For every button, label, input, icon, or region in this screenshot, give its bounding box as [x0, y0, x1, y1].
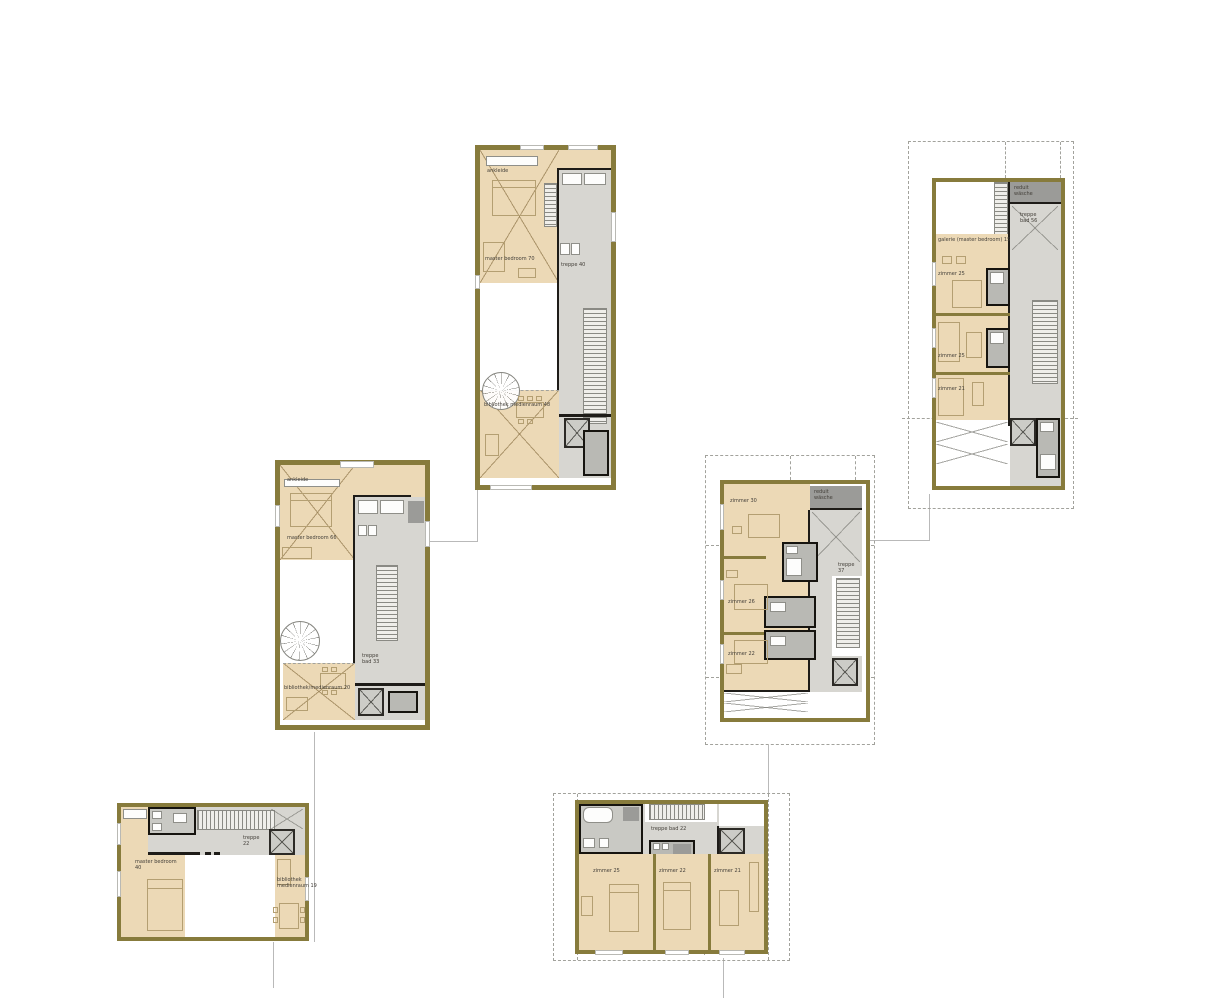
window	[720, 504, 724, 530]
fixture	[152, 811, 162, 819]
roof-cross	[724, 693, 808, 702]
room-label: master bedroom 66	[287, 535, 337, 541]
dashed-axis	[1060, 142, 1061, 178]
connector-line	[723, 958, 724, 998]
shelf	[485, 434, 499, 456]
roof-cross	[812, 512, 860, 562]
floorplan-top-center: ankleide master bedroom 70 treppe 40 bib…	[475, 145, 616, 490]
bed-headboard	[147, 879, 183, 889]
stairs	[649, 804, 705, 820]
dashed-axis	[855, 456, 856, 480]
room-divider-wall	[724, 556, 766, 559]
chair	[527, 419, 533, 424]
bathroom	[583, 430, 609, 476]
window	[720, 580, 724, 600]
table	[518, 268, 536, 278]
dashed-axis	[1005, 142, 1006, 178]
roof-cross	[271, 809, 303, 829]
room-label: zimmer 25	[938, 271, 965, 277]
fixture	[653, 843, 660, 850]
window	[340, 461, 374, 468]
window	[475, 275, 480, 289]
chair	[300, 907, 305, 913]
room-divider-wall	[653, 854, 656, 950]
bed	[952, 280, 982, 308]
floorplan-bottom-center: treppe bad 22 zimmer 25 zimmer 22 zimmer…	[575, 800, 768, 954]
stairs	[1032, 300, 1058, 384]
elevator	[269, 829, 295, 855]
window	[665, 950, 689, 955]
chair	[322, 667, 328, 672]
fixture	[990, 272, 1004, 284]
fixture	[990, 332, 1004, 344]
room-label: galerie (master bedroom) 15	[938, 237, 1010, 243]
room-divider-wall	[936, 372, 1010, 375]
bed-headboard	[492, 180, 536, 188]
window	[932, 328, 936, 348]
chair	[726, 570, 738, 578]
wardrobe	[486, 156, 538, 166]
dining-table	[279, 903, 299, 929]
window	[425, 521, 430, 547]
window	[932, 262, 936, 286]
interior-wall	[355, 683, 425, 686]
void-area	[719, 804, 764, 826]
room-label: zimmer 21	[714, 868, 741, 874]
elevator	[1010, 418, 1036, 446]
appliance	[623, 807, 639, 821]
closet	[358, 500, 378, 514]
chair	[518, 419, 524, 424]
closet	[584, 173, 606, 185]
table	[719, 890, 739, 926]
window	[520, 145, 544, 150]
spiral-stair	[280, 621, 320, 661]
room-label: master bedroom 40	[135, 859, 177, 871]
room-label: zimmer 25	[938, 353, 965, 359]
fixture	[173, 813, 187, 823]
bed	[748, 514, 780, 538]
floorplan-mid-left: ankleide master bedroom 66 treppe bad 33…	[275, 460, 430, 730]
window	[595, 950, 623, 955]
kitchenette	[560, 243, 570, 255]
room-label: ankleide	[487, 168, 508, 174]
shower	[1040, 454, 1056, 470]
room-label: zimmer 30	[730, 498, 757, 504]
stairs	[544, 183, 557, 227]
toilet	[583, 838, 595, 848]
elevator	[832, 658, 858, 686]
connector-line	[273, 942, 274, 988]
kitchenette	[358, 525, 367, 536]
dashed-axis	[790, 456, 791, 480]
room-label: ankleide	[287, 477, 308, 483]
fixture	[770, 636, 786, 646]
room-library	[283, 663, 355, 720]
room-label: reduit wäsche	[814, 489, 838, 501]
window	[117, 823, 121, 845]
stairs	[994, 182, 1008, 238]
stairs	[583, 308, 607, 424]
room-label: zimmer 25	[593, 868, 620, 874]
room-label: bibliothek medienraum 48	[484, 402, 550, 408]
stairs	[836, 578, 860, 648]
roof-cross	[936, 444, 1008, 464]
room-label: zimmer 22	[728, 651, 755, 657]
desk	[749, 862, 759, 912]
stairs	[376, 565, 398, 641]
sofa	[282, 547, 312, 559]
room-divider-wall	[936, 313, 1010, 316]
closet	[123, 809, 147, 819]
window	[117, 871, 121, 897]
room-label: reduit wäsche	[1014, 185, 1038, 197]
bed	[938, 378, 964, 416]
desk	[726, 664, 742, 674]
window	[611, 212, 616, 242]
connector-line	[314, 732, 315, 942]
chair	[273, 917, 278, 923]
room-label: treppe bad 22	[651, 826, 686, 832]
floorplan-mid-right: zimmer 30 reduit wäsche treppe 37 zimmer…	[720, 480, 870, 722]
desk	[972, 382, 984, 406]
interior-wall	[559, 414, 611, 417]
chair	[273, 907, 278, 913]
chair	[732, 526, 742, 534]
stairs	[197, 810, 275, 830]
chair	[300, 917, 305, 923]
void-area	[185, 855, 275, 937]
room-label: treppe bad 33	[362, 653, 388, 665]
chair	[331, 667, 337, 672]
bed-headboard	[290, 493, 332, 501]
closet	[380, 500, 404, 514]
chair	[518, 396, 524, 401]
room-label: zimmer 22	[659, 868, 686, 874]
floorplan-bottom-left: master bedroom 40 treppe 22 bibliothek m…	[117, 803, 309, 941]
room-label: treppe bad 56	[1020, 212, 1046, 224]
room-label: master bedroom 70	[485, 256, 535, 262]
fixture	[662, 843, 669, 850]
sink	[599, 838, 609, 848]
connector-line	[430, 541, 478, 542]
desk	[966, 332, 982, 358]
bathroom-pod	[764, 596, 816, 628]
room-label: treppe 22	[243, 835, 263, 847]
window	[932, 378, 936, 398]
room-label: bibliothek/medienraum 20	[284, 685, 350, 691]
bathtub	[583, 807, 613, 823]
appliance	[408, 501, 424, 523]
connector-line	[477, 490, 478, 542]
shower	[786, 558, 802, 576]
room-label: treppe 40	[561, 262, 585, 268]
chair	[527, 396, 533, 401]
room-label: zimmer 26	[728, 599, 755, 605]
roof-cross	[936, 422, 1008, 442]
kitchenette	[571, 243, 580, 255]
closet	[562, 173, 582, 185]
connector-line	[768, 745, 769, 795]
room-label: zimmer 21	[938, 386, 965, 392]
sofa	[286, 697, 308, 711]
room-divider-wall	[724, 632, 764, 635]
fixture	[786, 546, 798, 554]
elevator	[719, 828, 745, 854]
chair	[942, 256, 952, 264]
balustrade-line	[283, 663, 355, 664]
room-label: treppe 37	[838, 562, 858, 574]
bed	[734, 584, 768, 610]
fixture	[770, 602, 786, 612]
room-label: bibliothek medienraum 19	[277, 877, 317, 889]
toilet	[1040, 422, 1054, 432]
floorplan-top-right: reduit wäsche treppe bad 56 galerie (mas…	[932, 178, 1065, 490]
bed-headboard	[609, 884, 639, 893]
roof-cross	[724, 703, 808, 712]
chair	[536, 396, 542, 401]
window	[568, 145, 598, 150]
dashed-axis	[768, 794, 769, 960]
bathroom	[388, 691, 418, 713]
kitchenette	[368, 525, 377, 536]
window	[719, 950, 745, 955]
window	[490, 485, 532, 490]
drawing-canvas: ankleide master bedroom 70 treppe 40 bib…	[0, 0, 1226, 998]
room-divider-wall	[708, 854, 711, 950]
window	[275, 505, 280, 527]
desk	[581, 896, 593, 916]
fixture	[152, 823, 162, 831]
bed-headboard	[663, 882, 691, 891]
window	[720, 644, 724, 664]
elevator	[358, 688, 384, 716]
chair	[956, 256, 966, 264]
